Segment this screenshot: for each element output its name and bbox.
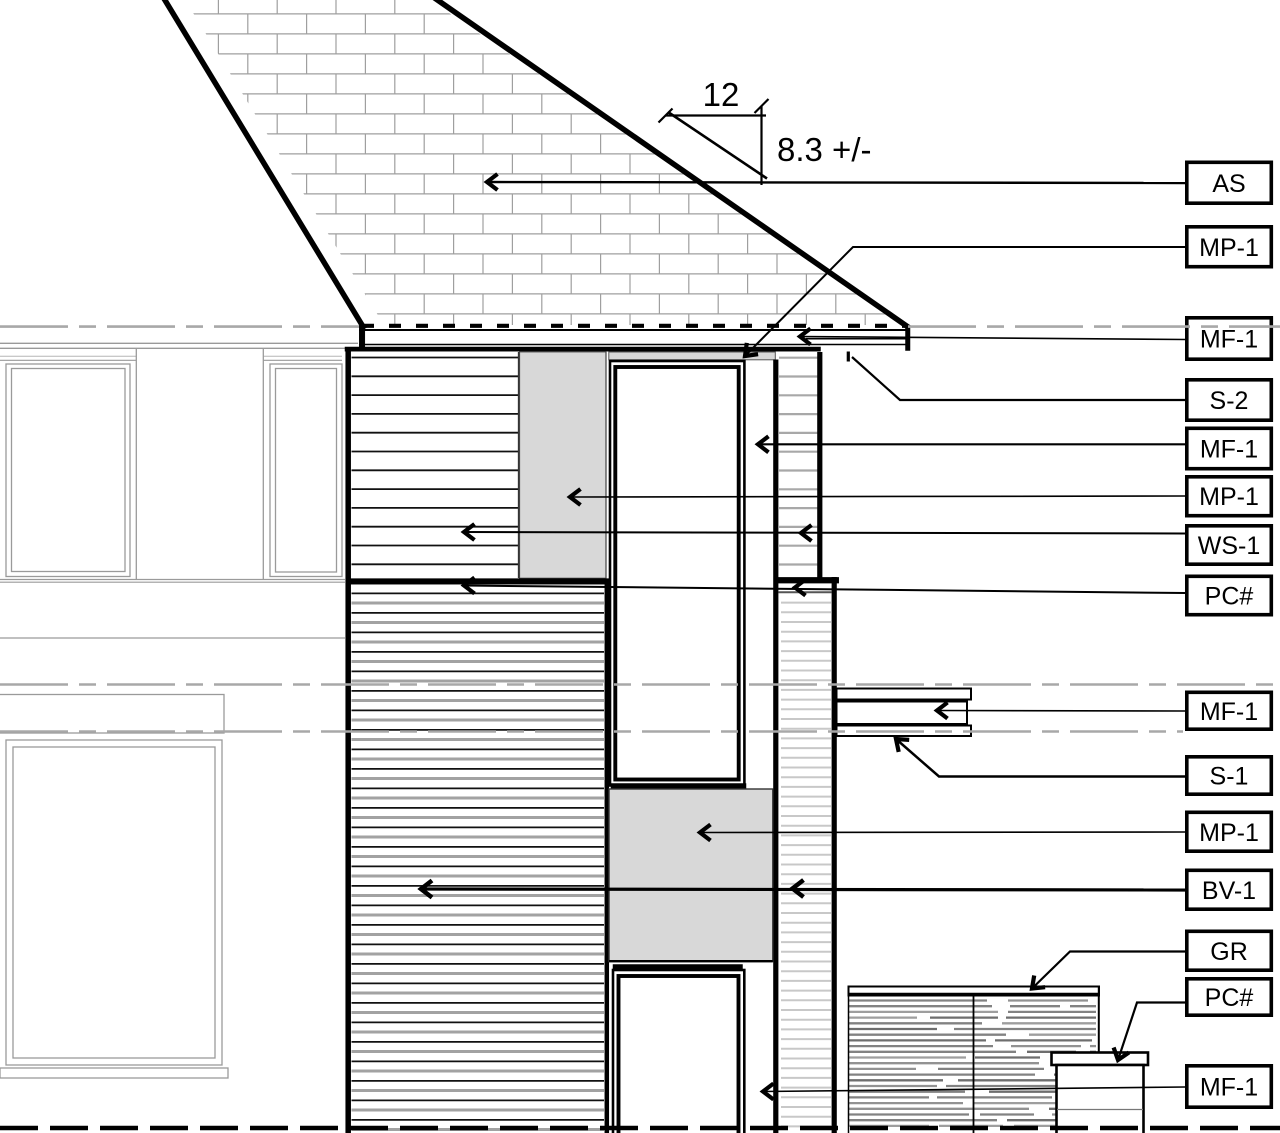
- svg-text:MF-1: MF-1: [1200, 326, 1258, 354]
- svg-text:S-1: S-1: [1210, 763, 1249, 791]
- svg-text:S-2: S-2: [1210, 387, 1249, 415]
- svg-text:AS: AS: [1212, 170, 1245, 198]
- svg-text:12: 12: [703, 76, 740, 113]
- svg-text:MF-1: MF-1: [1200, 1074, 1258, 1102]
- svg-text:MP-1: MP-1: [1199, 234, 1259, 262]
- svg-text:PC#: PC#: [1205, 583, 1254, 611]
- svg-text:GR: GR: [1210, 938, 1248, 966]
- svg-text:MF-1: MF-1: [1200, 698, 1258, 726]
- svg-text:MF-1: MF-1: [1200, 436, 1258, 464]
- svg-text:MP-1: MP-1: [1199, 483, 1259, 511]
- svg-text:PC#: PC#: [1205, 984, 1254, 1012]
- svg-text:WS-1: WS-1: [1198, 532, 1261, 560]
- svg-text:BV-1: BV-1: [1202, 877, 1256, 905]
- svg-text:MP-1: MP-1: [1199, 819, 1259, 847]
- svg-text:8.3 +/-: 8.3 +/-: [777, 131, 871, 168]
